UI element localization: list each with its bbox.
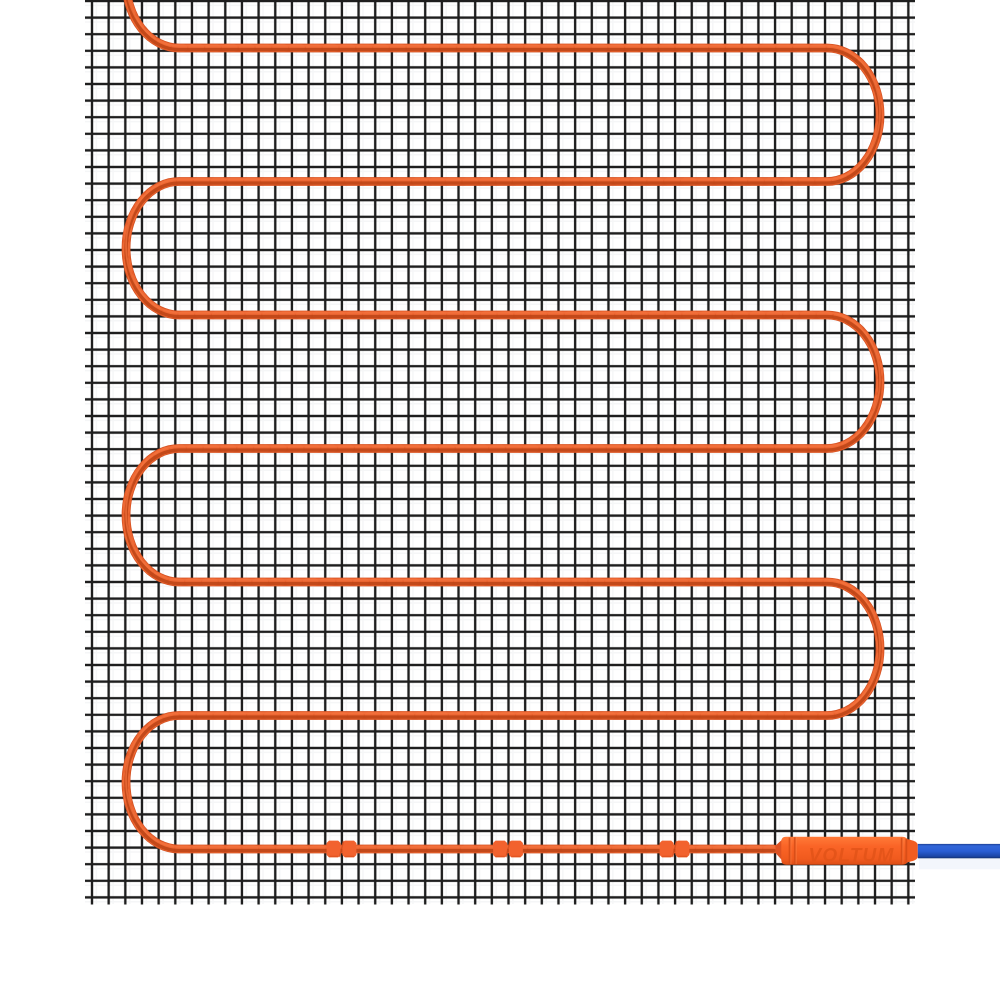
svg-text:VOLTUM: VOLTUM bbox=[808, 846, 894, 867]
